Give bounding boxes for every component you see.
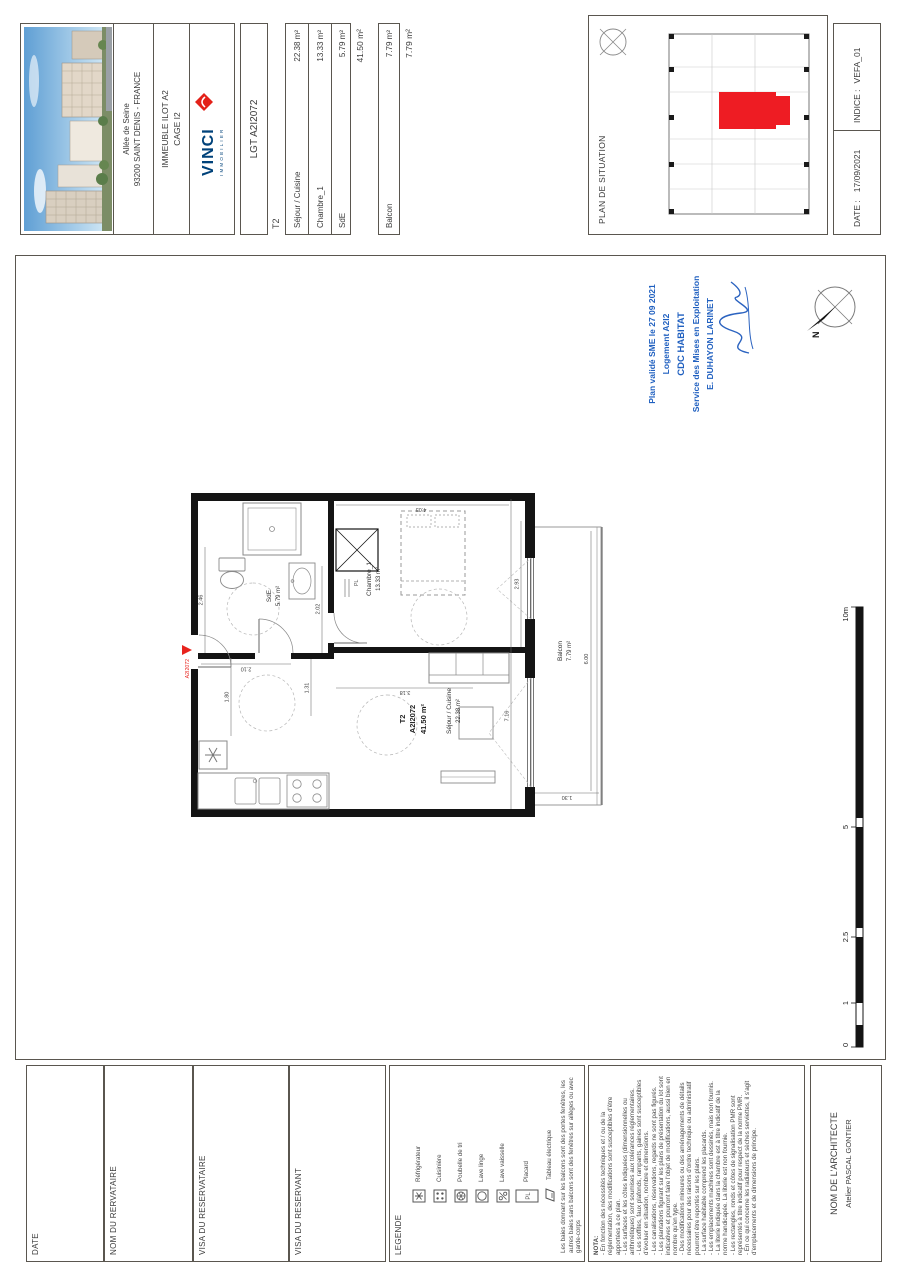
legend-note: Les baies donnant sur les balcons sont d…: [560, 1071, 582, 1253]
chambre-area: 13.33 m²: [376, 567, 382, 591]
scale-label: 0: [841, 1043, 850, 1047]
unit-type: T2: [271, 218, 281, 229]
vinci-mark-icon: [194, 92, 214, 112]
balcon-total: 7.79 m²: [404, 29, 414, 235]
visa-reservataire-label: VISA DU RESERVATAIRE: [198, 1155, 207, 1255]
title-block: Allée de Seine 93200 SAINT DENIS - FRANC…: [20, 23, 235, 235]
indice-label: INDICE :: [852, 89, 862, 123]
legend-item-label: Placard: [523, 1161, 530, 1182]
stamp-line: Service des Mises en Exploitation: [691, 259, 701, 429]
balcon-row: Balcon 7.79 m²: [378, 23, 400, 235]
legend-item-label: Tableau électrique: [546, 1130, 553, 1180]
toilet: [219, 558, 245, 589]
balcon-label: Balcon: [557, 641, 564, 661]
svg-text:4.03: 4.03: [416, 506, 427, 512]
legend-item: Poubelle de tri: [450, 1073, 471, 1203]
fridge-icon: [412, 1189, 426, 1203]
visa-reservataire-box: VISA DU RESERVATAIRE: [193, 1065, 289, 1262]
architect-box: NOM DE L'ARCHITECTE Atelier PASCAL GONTI…: [810, 1065, 882, 1262]
address-cell: Allée de Seine 93200 SAINT DENIS - FRANC…: [113, 24, 154, 234]
legend-item-label: Lave linge: [478, 1154, 485, 1182]
scale-bar: 0 1 2.5 5 10m: [839, 601, 879, 1049]
legend-title: LEGENDE: [394, 1215, 403, 1255]
entry-door: [198, 635, 231, 667]
placard-label: PL: [354, 580, 360, 586]
svg-text:3.18: 3.18: [400, 689, 411, 695]
stamp-line: Plan validé SME le 27 09 2021: [647, 259, 657, 429]
compass-icon: [595, 24, 631, 60]
legend-item-label: Lave vaisselle: [499, 1143, 506, 1182]
areas-table: Séjour / Cuisine 22.38 m² Chambre_1 13.3…: [285, 23, 351, 235]
legend-item-label: Cuisinière: [436, 1154, 443, 1182]
stamp-line: Logement A2I2: [661, 259, 671, 429]
legend-item: Réfrigérateur: [408, 1073, 429, 1203]
brand-name: VINCI: [200, 127, 218, 176]
svg-text:1.31: 1.31: [305, 683, 311, 694]
bed: [401, 511, 465, 595]
unit-type-label: T2: [398, 715, 407, 724]
balcon-row-value: 7.79 m²: [385, 30, 394, 57]
highlighted-unit: [719, 92, 776, 129]
north-arrow: N: [799, 279, 869, 343]
window-opening-lines: [489, 558, 531, 787]
area-row-label: Chambre_1: [316, 62, 325, 228]
chambre-door: [334, 613, 367, 643]
highlighted-unit-balcony: [776, 96, 790, 125]
nota-title: NOTA:: [593, 1072, 600, 1255]
table: [459, 707, 493, 739]
area-row: SdE 5.79 m²: [332, 24, 353, 234]
indice-cell: INDICE : VEFA_01: [833, 23, 881, 131]
washing-machine-icon: [475, 1189, 489, 1203]
chambre-label: Chambre_1: [366, 562, 373, 596]
recycle-bin-icon: [454, 1189, 468, 1203]
svg-text:2.10: 2.10: [241, 666, 252, 672]
address-line1: Allée de Seine: [122, 24, 131, 234]
sejour-label: Séjour / Cuisine: [446, 688, 453, 734]
placard-icon: PL: [515, 1189, 539, 1203]
balcon-row-label: Balcon: [385, 57, 394, 228]
area-row: Séjour / Cuisine 22.38 m²: [286, 24, 309, 234]
legend-item-label: Réfrigérateur: [415, 1146, 422, 1182]
validation-stamp: Plan validé SME le 27 09 2021 Logement A…: [647, 259, 764, 429]
scale-label: 10m: [841, 607, 850, 622]
placard-hanger: [345, 579, 349, 597]
building-name: IMMEUBLE ILOT A2: [160, 24, 170, 234]
signature-icon: [717, 279, 759, 359]
area-row-value: 5.79 m²: [338, 30, 347, 57]
sde-door: [259, 619, 293, 653]
indice-value: VEFA_01: [852, 48, 862, 84]
area-row-value: 22.38 m²: [293, 30, 302, 62]
brand-logo: VINCI IMMOBILIER: [200, 127, 224, 176]
nota-line: - Des modifications mineures ou des amén…: [679, 1072, 701, 1255]
sejour-area: 22.38 m²: [456, 699, 462, 723]
legend-item: Lave linge: [471, 1073, 492, 1203]
nota-line: - Les soffites, faux plafonds, rampants,…: [636, 1072, 650, 1255]
pmr-circle-entry: [239, 675, 295, 731]
date-box-label: DATE: [31, 1233, 40, 1255]
legend-item: Cuisinière: [429, 1073, 450, 1203]
brand-sub: IMMOBILIER: [219, 127, 224, 176]
scale-label: 2.5: [841, 932, 850, 942]
unit-area-label: 41.50 m²: [419, 703, 428, 734]
visa-reservant-label: VISA DU RESERVANT: [294, 1168, 303, 1255]
scale-label: 5: [841, 825, 850, 829]
visa-reservant-box: VISA DU RESERVANT: [289, 1065, 386, 1262]
situation-title: PLAN DE SITUATION: [597, 135, 607, 224]
cage-name: CAGE I2: [172, 24, 182, 234]
area-row: Chambre_1 13.33 m²: [309, 24, 332, 234]
shower: [243, 503, 301, 555]
sideboard: [441, 771, 495, 783]
date-box: DATE: [26, 1065, 104, 1262]
unit-code-label: A2I2072: [408, 705, 417, 733]
area-row-value: 13.33 m²: [316, 30, 325, 62]
svg-text:2.02: 2.02: [316, 604, 322, 615]
dishwasher-icon: [496, 1189, 510, 1203]
nota-line: - En fonction des nécessités techniques …: [600, 1072, 622, 1255]
architect-name: Atelier PASCAL GONTIER: [844, 1066, 853, 1261]
svg-text:2.46: 2.46: [199, 595, 205, 606]
area-row-label: Séjour / Cuisine: [293, 62, 302, 228]
legend-box: LEGENDE Réfrigérateur Cuisinière Poubell…: [389, 1065, 585, 1262]
legend-item: Tableau électrique: [540, 1073, 560, 1203]
building-cell: IMMEUBLE ILOT A2 CAGE I2: [153, 24, 190, 234]
nom-reservataire-box: NOM DU RERVATAIRE: [104, 1065, 193, 1262]
sejour-window: [528, 678, 534, 787]
nota-line: - Les plantations figurant sur les plans…: [658, 1072, 680, 1255]
balcon-area: 7.79 m²: [567, 641, 573, 661]
north-letter: N: [811, 332, 821, 339]
architect-label: NOM DE L'ARCHITECTE: [829, 1066, 839, 1261]
electrical-panel-icon: [544, 1187, 556, 1203]
nota-line: - En ce qui concerne les radiateurs et s…: [744, 1072, 758, 1255]
sde-label: SdE: [266, 589, 273, 602]
scale-label: 1: [841, 1001, 850, 1005]
nota-line: - Les canalisations, réservations, regar…: [651, 1072, 658, 1255]
brand-cell: VINCI IMMOBILIER: [189, 24, 235, 234]
nota-box: NOTA: - En fonction des nécessités techn…: [588, 1065, 805, 1262]
entry-unit-code: A2I2072: [185, 659, 191, 678]
situation-box: PLAN DE SITUATION: [588, 15, 828, 235]
nota-line: - La surface habitable comprend les plac…: [701, 1072, 708, 1255]
nota-line: - Les rectangles, ronds et côtes de sign…: [730, 1072, 744, 1255]
date-value: 17/09/2021: [852, 150, 862, 193]
stove-icon: [433, 1189, 447, 1203]
balcony-slab: [531, 527, 601, 805]
legend-item: Lave vaisselle: [492, 1073, 513, 1203]
area-row-label: SdE: [338, 57, 347, 228]
legend-item: PL Placard: [513, 1073, 540, 1203]
nota-line: - Les emplacements machines sont dessiné…: [708, 1072, 715, 1255]
svg-text:PL: PL: [526, 1192, 532, 1200]
legend-item-label: Poubelle de tri: [457, 1142, 464, 1182]
sde-area: 5.79 m²: [276, 586, 282, 606]
entry-arrow-icon: [182, 645, 192, 655]
svg-text:1.30: 1.30: [562, 794, 573, 800]
total-area: 41.50 m²: [355, 29, 365, 235]
nota-line: - La literie indiquée dans la chambre es…: [715, 1072, 729, 1255]
project-photo: [24, 27, 112, 231]
date-label: DATE :: [852, 200, 862, 227]
plan-sheet: DATE NOM DU RERVATAIRE VISA DU RESERVATA…: [0, 0, 900, 1272]
fridge: [199, 741, 227, 769]
date-cell: DATE : 17/09/2021: [833, 130, 881, 235]
lot-number: LGT A2I2072: [249, 100, 260, 159]
svg-text:6.00: 6.00: [584, 654, 590, 665]
washbasin: [289, 563, 315, 599]
drawing-area: PL A2I2072: [15, 255, 886, 1060]
situation-map: [637, 24, 825, 224]
kitchen-counter: [198, 773, 329, 809]
scanned-floorplan-sheet: { "header": { "address_line1": "Allée de…: [0, 0, 900, 1272]
chambre-window: [528, 558, 534, 619]
nota-line: - Les surfaces et les côtes indiquées (d…: [622, 1072, 636, 1255]
stamp-line: CDC HABITAT: [676, 259, 687, 429]
lot-header-box: LGT A2I2072: [240, 23, 268, 235]
pmr-circle-chambre: [411, 589, 467, 645]
sofa: [429, 653, 509, 683]
dimension-lines: [201, 499, 599, 809]
svg-text:7.16: 7.16: [505, 711, 511, 722]
address-line2: 93200 SAINT DENIS - FRANCE: [133, 24, 142, 234]
svg-text:2.93: 2.93: [515, 579, 521, 590]
stamp-line: E. DUHAYON LARINET: [705, 259, 715, 429]
svg-text:1.80: 1.80: [225, 692, 231, 703]
nom-reservataire-label: NOM DU RERVATAIRE: [109, 1166, 118, 1255]
floor-plan: PL A2I2072: [181, 481, 616, 821]
